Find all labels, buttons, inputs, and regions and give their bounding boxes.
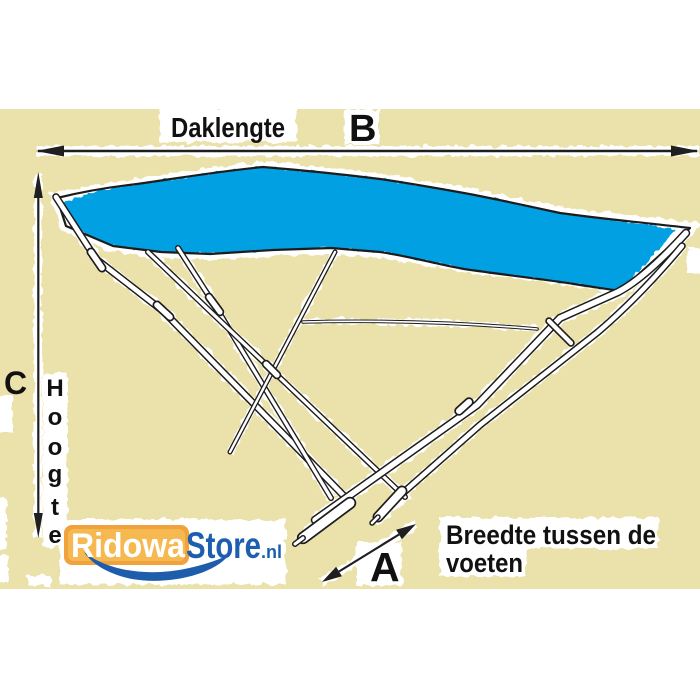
svg-text:Breedte tussen de: Breedte tussen de (446, 520, 656, 550)
svg-text:o: o (48, 404, 63, 431)
svg-text:o: o (48, 434, 63, 461)
svg-text:Store: Store (186, 525, 261, 566)
svg-text:.nl: .nl (261, 542, 282, 562)
svg-text:Daklengte: Daklengte (171, 112, 285, 143)
svg-text:t: t (51, 494, 59, 521)
svg-text:g: g (48, 461, 63, 488)
svg-text:C: C (4, 365, 27, 401)
svg-text:voeten: voeten (446, 548, 523, 578)
svg-text:A: A (370, 544, 400, 590)
svg-text:e: e (48, 522, 61, 549)
svg-text:Ridowa: Ridowa (71, 527, 186, 565)
svg-text:B: B (349, 108, 376, 150)
svg-text:H: H (46, 375, 63, 402)
